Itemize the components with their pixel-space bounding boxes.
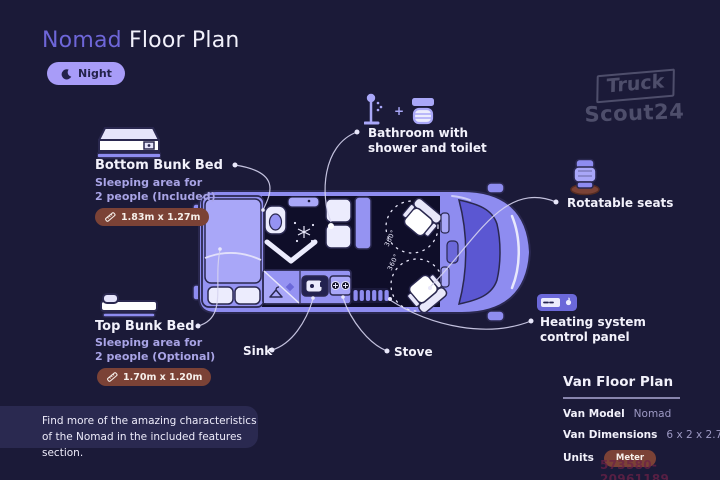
top-bunk-desc-line1: Sleeping area for [95, 336, 202, 350]
page-title-rest: Floor Plan [122, 28, 240, 53]
top-bunk-desc-line2: 2 people (Optional) [95, 350, 215, 364]
toilet-icon [410, 97, 436, 126]
bathroom-label-line1: Bathroom with [368, 126, 468, 141]
bottom-bunk-title: Bottom Bunk Bed [95, 158, 223, 173]
moon-icon [60, 68, 72, 80]
night-mode-label: Night [78, 67, 112, 80]
top-bunk-dimensions-badge: 1.70m x 1.20m [97, 368, 211, 386]
listing-id-watermark: 573580-20961189 [600, 458, 720, 480]
bathroom-label-line2: shower and toilet [368, 141, 487, 156]
top-bunk-title: Top Bunk Bed [95, 319, 195, 334]
bottom-bunk-desc-line2: 2 people (Included) [95, 190, 216, 204]
bottom-bunk-dimensions-badge: 1.83m x 1.27m [95, 208, 209, 226]
bunk-bed-icon [100, 290, 158, 318]
kitchen-counter [263, 270, 351, 304]
page-title: Nomad Floor Plan [42, 28, 240, 53]
spec-panel-divider [563, 397, 680, 399]
bathroom-shelf [288, 197, 319, 207]
logo-scout24-text: Scout24 [584, 99, 684, 126]
heating-label-line1: Heating system [540, 315, 646, 330]
seat-icon [567, 158, 603, 196]
spec-row-dimensions: Van Dimensions 6 x 2 x 2.75 m [563, 429, 713, 441]
night-mode-toggle[interactable]: Night [47, 62, 125, 85]
ruler-icon [104, 211, 116, 223]
stove-label: Stove [394, 345, 433, 360]
van-model-value: Nomad [634, 408, 672, 420]
plus-glyph: + [394, 105, 404, 126]
shower-icon [364, 92, 388, 126]
bathroom-callout-dot [328, 223, 334, 229]
sink-unit [302, 276, 328, 296]
ruler-icon [106, 371, 118, 383]
van-dimensions-label: Van Dimensions [563, 429, 657, 441]
bed-pillow [208, 287, 233, 304]
bottom-bunk-dimensions: 1.83m x 1.27m [121, 212, 200, 223]
features-note-text: Find more of the amazing characteristics… [42, 413, 258, 461]
van-spec-panel: Van Floor Plan Van Model Nomad Van Dimen… [563, 374, 713, 467]
bathroom-icons: + [364, 92, 436, 126]
bottom-bunk-desc-line1: Sleeping area for [95, 176, 202, 190]
top-bunk-dimensions: 1.70m x 1.20m [123, 372, 202, 383]
units-label: Units [563, 452, 594, 464]
features-note-panel: Find more of the amazing characteristics… [0, 406, 258, 448]
toilet [265, 206, 286, 234]
dinette-table [355, 197, 371, 249]
entry-step [351, 288, 389, 303]
van-dimensions-value: 6 x 2 x 2.75 m [666, 429, 720, 441]
stove-unit [330, 276, 351, 295]
note-line1: Find more of the amazing characteristics [42, 413, 258, 429]
floor-plan-page: 360° 360° [0, 0, 720, 480]
truckscout24-logo: Truck Scout24 [583, 70, 685, 126]
spec-row-model: Van Model Nomad [563, 408, 713, 420]
logo-truck-box: Truck [596, 69, 674, 104]
cab-console [447, 241, 458, 263]
door-pocket [441, 267, 449, 287]
heating-panel-icon [537, 294, 577, 312]
spec-panel-title: Van Floor Plan [563, 374, 713, 390]
bunk-bed-icon [97, 127, 161, 161]
rotatable-seats-label: Rotatable seats [567, 196, 673, 211]
note-line2: of the Nomad in the included features se… [42, 429, 258, 461]
side-mirror-bottom [487, 311, 504, 321]
door-pocket [441, 213, 449, 233]
sink-label: Sink [243, 344, 272, 359]
rear-bed [202, 196, 264, 307]
page-title-accent: Nomad [42, 28, 122, 53]
van-model-label: Van Model [563, 408, 625, 420]
bed-pillow [235, 287, 260, 304]
heating-label-line2: control panel [540, 330, 630, 345]
side-mirror-top [487, 183, 504, 193]
